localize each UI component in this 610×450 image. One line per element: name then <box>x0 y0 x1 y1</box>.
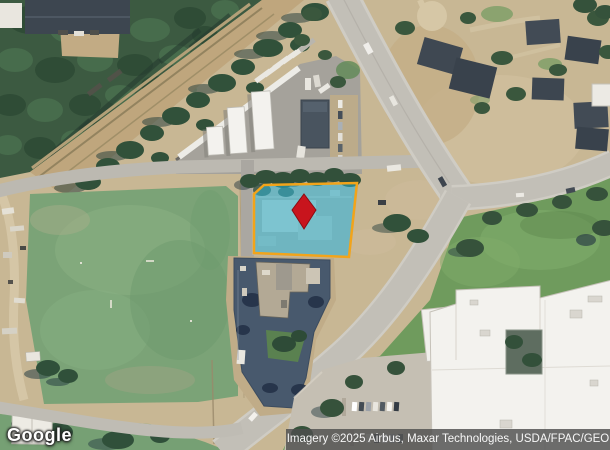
storage-building-small <box>206 126 224 155</box>
map-attribution: Imagery ©2025 Airbus, Maxar Technologies… <box>286 429 610 450</box>
house-roof <box>564 36 601 64</box>
house-roof <box>525 19 561 45</box>
satellite-imagery <box>0 0 610 450</box>
storage-building-medium <box>227 107 247 154</box>
white-building <box>0 3 22 28</box>
house-roof <box>575 127 609 152</box>
school-building <box>421 280 610 450</box>
white-building <box>592 84 610 106</box>
google-logo[interactable]: Google <box>7 425 72 446</box>
parcel-overlay <box>254 183 357 257</box>
storage-building-large <box>251 91 274 150</box>
map-viewport[interactable]: Google Imagery ©2025 Airbus, Maxar Techn… <box>0 0 610 450</box>
house-roof <box>532 77 565 100</box>
